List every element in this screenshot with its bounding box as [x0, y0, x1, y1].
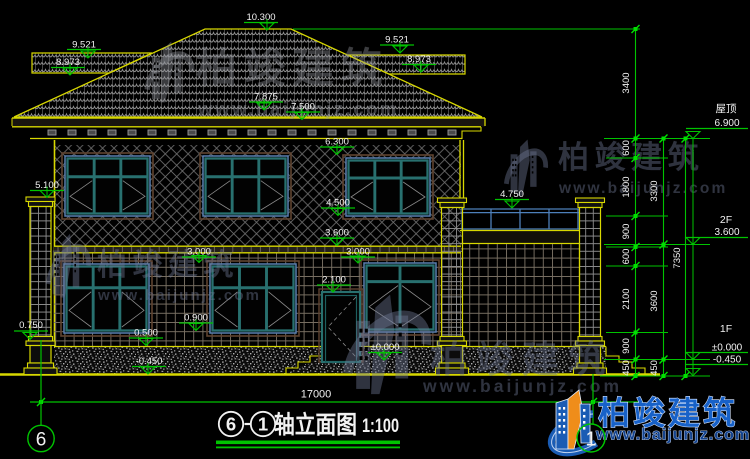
svg-text:2100: 2100 [621, 288, 632, 309]
svg-text:屋顶: 屋顶 [716, 103, 737, 115]
svg-text:www.baijunjz.com: www.baijunjz.com [558, 180, 728, 197]
svg-text:9.521: 9.521 [72, 40, 96, 51]
svg-text:www.baijunjz.com: www.baijunjz.com [595, 427, 750, 444]
svg-text:1: 1 [585, 429, 596, 451]
svg-text:7.500: 7.500 [291, 102, 315, 113]
svg-text:450: 450 [649, 360, 660, 376]
svg-text:17000: 17000 [301, 389, 332, 401]
svg-text:-0.450: -0.450 [136, 356, 163, 367]
svg-text:7.875: 7.875 [254, 92, 278, 103]
svg-text:600: 600 [621, 140, 632, 156]
svg-text:9.521: 9.521 [385, 35, 409, 46]
svg-text:柏竣建筑: 柏竣建筑 [196, 45, 390, 91]
svg-text:1800: 1800 [621, 176, 632, 197]
svg-text:www.baijunjz.com: www.baijunjz.com [97, 287, 261, 304]
svg-text:1F: 1F [720, 323, 732, 335]
svg-text:7350: 7350 [672, 247, 683, 268]
svg-text:±0.000: ±0.000 [712, 343, 743, 354]
svg-text:900: 900 [621, 224, 632, 240]
svg-text:3600: 3600 [649, 290, 660, 311]
svg-text:450: 450 [621, 360, 632, 376]
svg-text:1: 1 [258, 414, 268, 435]
svg-text:8.973: 8.973 [407, 54, 431, 65]
svg-text:6.900: 6.900 [714, 118, 739, 129]
svg-text:www.baijunjz.com: www.baijunjz.com [422, 376, 622, 396]
svg-text:3300: 3300 [649, 180, 660, 201]
svg-text:轴立面图: 轴立面图 [274, 410, 357, 439]
svg-text:2.100: 2.100 [322, 275, 346, 286]
svg-text:±0.000: ±0.000 [371, 342, 400, 353]
svg-text:柏竣建筑: 柏竣建筑 [430, 338, 614, 380]
svg-text:10.300: 10.300 [246, 12, 275, 23]
svg-text:0.750: 0.750 [19, 320, 43, 331]
svg-text:8.973: 8.973 [56, 57, 80, 68]
svg-text:3.600: 3.600 [714, 227, 739, 238]
svg-text:600: 600 [621, 249, 632, 265]
svg-text:3400: 3400 [621, 72, 632, 93]
svg-text:1:100: 1:100 [362, 415, 399, 437]
svg-text:柏竣建筑: 柏竣建筑 [97, 248, 239, 282]
svg-text:900: 900 [621, 338, 632, 354]
svg-text:2F: 2F [720, 214, 732, 226]
svg-text:-0.450: -0.450 [713, 355, 742, 366]
svg-text:6: 6 [226, 414, 236, 435]
svg-text:6: 6 [36, 430, 47, 451]
